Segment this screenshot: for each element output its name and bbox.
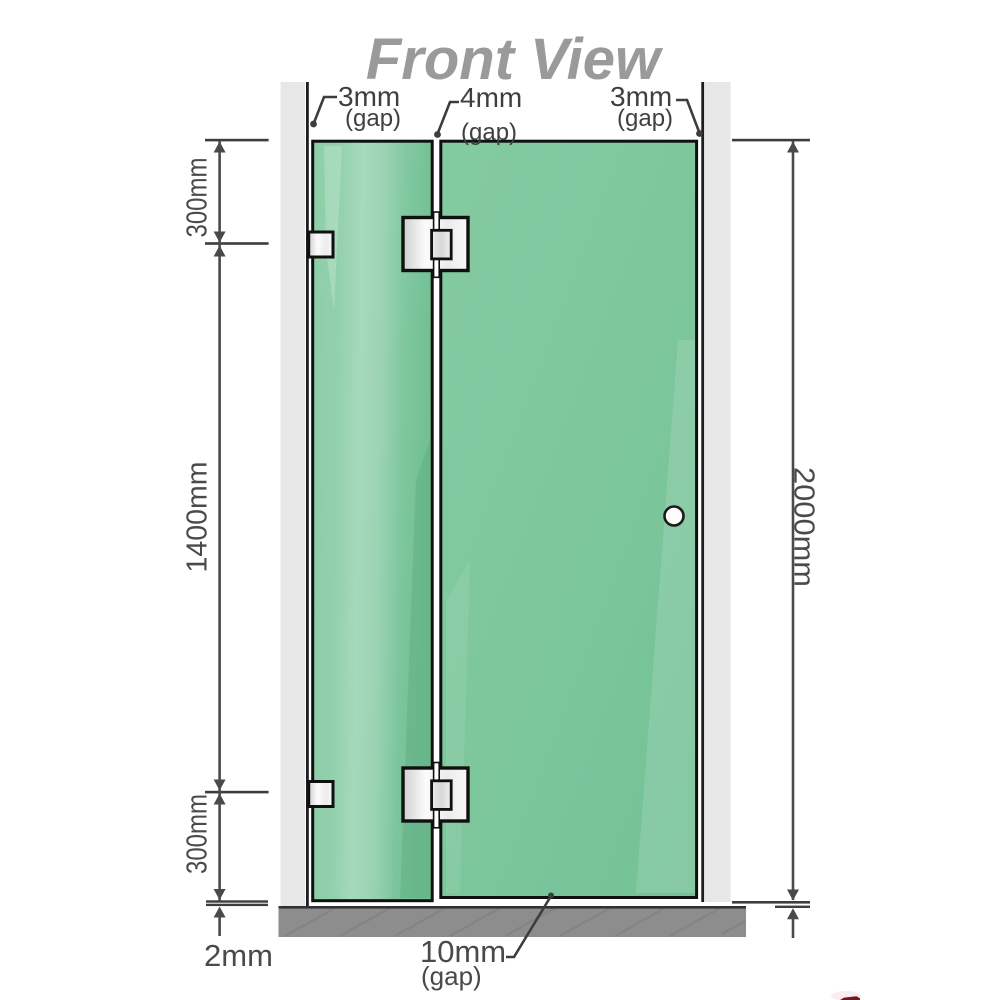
svg-text:1400mm: 1400mm <box>182 462 214 573</box>
svg-text:300mm: 300mm <box>182 794 214 874</box>
svg-text:4mm: 4mm <box>460 82 522 113</box>
svg-text:(gap): (gap) <box>345 105 401 132</box>
svg-text:2mm: 2mm <box>204 938 273 973</box>
svg-text:(gap): (gap) <box>421 961 482 991</box>
svg-text:300mm: 300mm <box>182 158 214 238</box>
svg-text:(gap): (gap) <box>461 119 517 146</box>
svg-text:2000mm: 2000mm <box>788 467 820 587</box>
svg-text:(gap): (gap) <box>617 105 673 132</box>
